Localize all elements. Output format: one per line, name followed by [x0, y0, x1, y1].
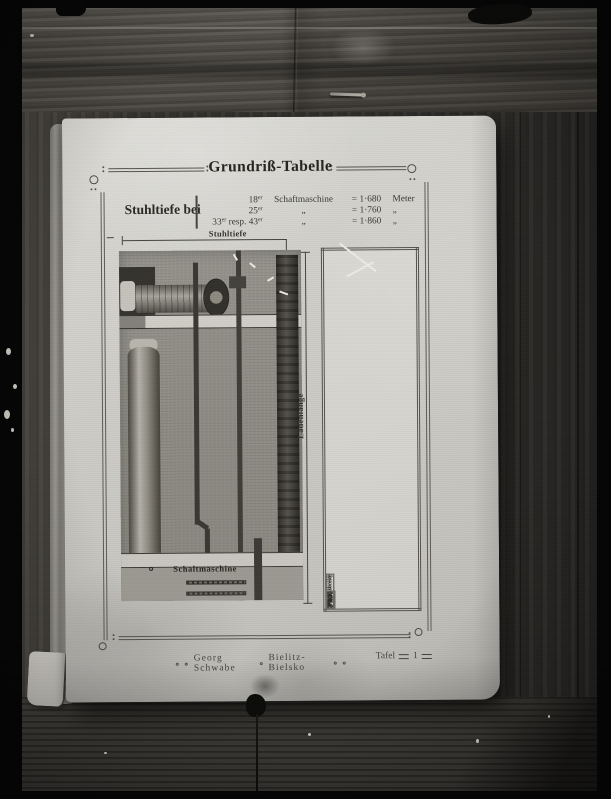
ornament-rule-vertical-left — [100, 192, 107, 640]
dimension-line-vertical — [305, 252, 308, 604]
ornament-rule-right — [336, 166, 406, 170]
plate-word: Tafel — [376, 651, 395, 661]
entry-name: „ — [267, 217, 341, 229]
book-page: Grundriß-Tabelle Stuhltiefe bei 18er Sch… — [62, 115, 500, 702]
loom-drawing: Schaltmaschine — [119, 250, 303, 601]
protruding-page-corner — [27, 651, 68, 707]
ornament-circle-icon — [343, 661, 346, 664]
machine-label-row: Schaltmaschine — [149, 562, 261, 575]
cloth-roller — [128, 347, 162, 563]
emulsion-speck — [6, 348, 11, 355]
entry-value: = 1·760 — [341, 205, 393, 216]
nail-head — [361, 92, 366, 97]
photo-blemish — [249, 262, 256, 268]
plate-frame-bottom — [0, 791, 611, 799]
dimension-line-horizontal — [123, 239, 287, 241]
slay-beam — [119, 314, 301, 329]
ornament-dots — [409, 178, 411, 180]
dimension-tick — [303, 603, 312, 604]
table-cell: 5·000 — [326, 590, 335, 608]
wood-seam-right — [577, 112, 579, 704]
adjusting-screw — [186, 580, 246, 584]
entry-unit: Meter — [393, 194, 431, 205]
entry-unit: „ — [393, 216, 431, 227]
entry-machine: 25er — [203, 206, 267, 217]
grundriss-table-area: ArbeitsbreiteBlatt-breiteLaden-längeArbe… — [321, 247, 422, 612]
dimension-tick — [122, 236, 123, 245]
double-bar-ornament — [422, 653, 432, 658]
adjusting-screw — [186, 591, 246, 595]
photo-plate: Grundriß-Tabelle Stuhltiefe bei 18er Sch… — [0, 0, 611, 799]
ornament-circle-icon — [334, 661, 337, 664]
ornament-circle-icon — [176, 662, 179, 665]
shadow-smudge — [119, 315, 145, 329]
dust-speck — [104, 752, 107, 754]
publisher-name: Georg Schwabe — [194, 653, 254, 673]
beam-knob — [120, 281, 135, 311]
ornament-circle-icon — [99, 642, 107, 650]
footer-rule — [119, 634, 411, 640]
entry-machine: 18er — [203, 195, 267, 206]
emulsion-speck — [4, 410, 10, 419]
double-bar-ornament — [399, 654, 409, 659]
ornament-circle-icon — [407, 164, 416, 173]
entry-value: = 1·680 — [341, 194, 393, 205]
ratchet-gear — [203, 278, 229, 316]
entry-unit: „ — [393, 205, 431, 216]
publisher-city: Bielitz-Bielsko — [268, 653, 327, 673]
warp-beam — [135, 284, 211, 313]
brace-bar — [196, 196, 198, 229]
clip-wire — [256, 714, 258, 798]
entry-name: Schaftmaschine — [267, 195, 341, 207]
grundriss-table: ArbeitsbreiteBlatt-breiteLaden-längeArbe… — [321, 247, 422, 612]
stuhltiefe-label: Stuhltiefe bei — [125, 202, 201, 219]
rod-coupling — [229, 276, 246, 288]
wood-seam-faint — [520, 112, 521, 704]
wood-board-top — [8, 7, 603, 119]
ornament-circle-icon — [185, 662, 188, 665]
stuhltiefe-entries: 18er Schaftmaschine = 1·680 Meter 25er „… — [203, 194, 435, 229]
emulsion-speck — [11, 428, 14, 432]
ornament-dots — [409, 632, 411, 634]
emulsion-speck — [13, 384, 17, 389]
entry-value: = 1·860 — [341, 216, 393, 227]
emulsion-speck — [30, 34, 34, 37]
ornament-circle-icon — [259, 662, 262, 665]
dust-speck — [308, 733, 311, 736]
rotated-table-container: ArbeitsbreiteBlatt-breiteLaden-längeArbe… — [321, 247, 422, 612]
photo-blemish — [267, 276, 274, 281]
ornament-circle-icon — [89, 175, 98, 184]
frame-notch — [56, 0, 86, 16]
machine-label: Schaltmaschine — [173, 563, 237, 573]
entry-name: „ — [267, 206, 341, 218]
dimension-label-ladenlaenge: Ladenlänge — [295, 375, 305, 439]
ornament-circle-icon — [149, 567, 153, 571]
ornament-rule-left — [108, 168, 204, 173]
dust-speck — [548, 715, 550, 718]
dimension-tick — [107, 237, 114, 238]
wood-grain-band — [8, 63, 603, 77]
plate-number-row: Tafel 1 — [376, 651, 432, 661]
wood-board-edge — [8, 27, 603, 29]
ornament-dots — [113, 634, 115, 636]
ornament-circle-icon — [415, 628, 423, 636]
support-bracket — [254, 538, 262, 600]
plate-number: 1 — [413, 651, 418, 661]
page-title: Grundriß-Tabelle — [202, 158, 338, 177]
plate-frame-left — [0, 0, 22, 799]
dimension-tick — [301, 252, 310, 253]
nail — [330, 92, 364, 96]
stuhltiefe-entry: 33er resp. 43er „ = 1·860 „ — [203, 216, 435, 229]
imprint: Georg Schwabe Bielitz-Bielsko — [176, 653, 346, 674]
entry-machine: 33er resp. 43er — [203, 217, 267, 228]
ornament-dots — [102, 166, 104, 168]
dust-speck — [476, 739, 479, 743]
wood-board-bottom — [8, 697, 603, 792]
dimension-label-stuhltiefe: Stuhltiefe — [183, 228, 273, 239]
plate-frame-right — [597, 0, 611, 799]
ornament-rule-vertical-right — [424, 182, 431, 631]
drive-rod — [236, 250, 243, 600]
ornament-dots — [90, 188, 92, 190]
